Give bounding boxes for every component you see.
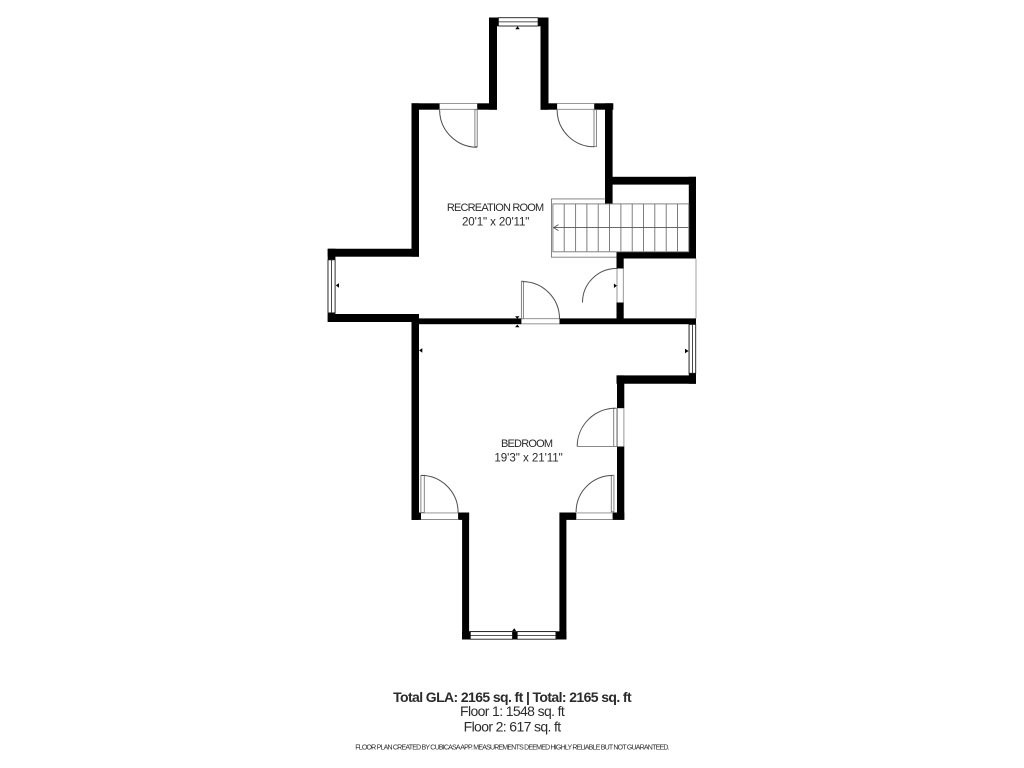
svg-text:19'3" x 21'11": 19'3" x 21'11" — [494, 451, 562, 464]
svg-text:FLOOR PLAN CREATED BY CUBICASA: FLOOR PLAN CREATED BY CUBICASA APP. MEAS… — [355, 745, 669, 752]
svg-text:BEDROOM: BEDROOM — [501, 438, 553, 450]
svg-text:20'1" x 20'11": 20'1" x 20'11" — [462, 215, 529, 228]
svg-text:RECREATION ROOM: RECREATION ROOM — [447, 202, 544, 214]
svg-text:Floor 1: 1548 sq. ft: Floor 1: 1548 sq. ft — [460, 703, 565, 719]
svg-text:Floor 2: 617 sq. ft: Floor 2: 617 sq. ft — [464, 718, 562, 734]
